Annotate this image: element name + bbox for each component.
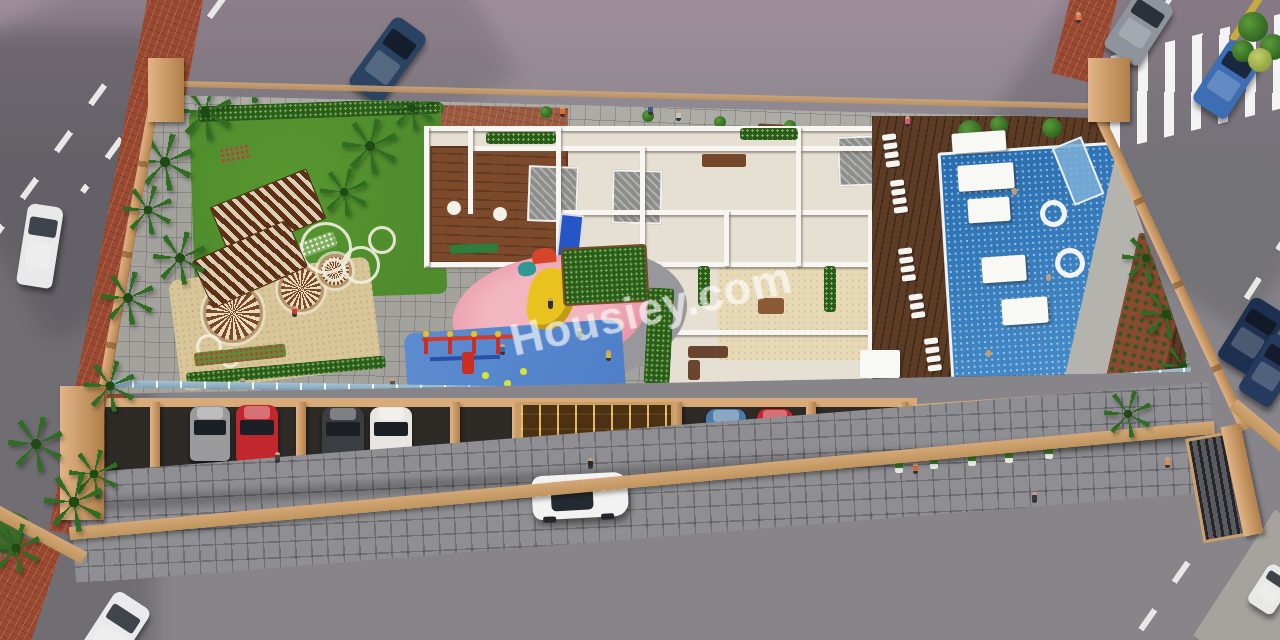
person xyxy=(606,350,611,361)
cafe-table xyxy=(444,198,464,218)
yellow-green-tree xyxy=(1248,48,1272,72)
club-wall xyxy=(470,146,874,151)
pool-lounger xyxy=(900,265,915,273)
person xyxy=(1076,12,1081,23)
person xyxy=(560,106,565,117)
person xyxy=(1165,457,1170,468)
person xyxy=(292,306,297,317)
gym-cap-yellow xyxy=(423,331,429,337)
club-planter xyxy=(740,128,798,140)
pool-cabana-wall xyxy=(951,130,1006,154)
palm-tree xyxy=(320,168,368,216)
pool-edge-shrub xyxy=(1042,118,1062,138)
pool-side-table xyxy=(860,350,900,378)
sofa xyxy=(688,360,700,380)
palm-tree xyxy=(153,231,207,285)
palm-tree xyxy=(101,271,155,325)
play-equipment-red xyxy=(462,352,474,374)
kitchen-counter xyxy=(702,154,746,167)
pool-lounger xyxy=(898,247,913,255)
spring-rider-yellow xyxy=(504,380,511,387)
club-planter xyxy=(486,132,556,144)
swimmer xyxy=(1012,188,1017,195)
club-planter xyxy=(824,266,836,312)
palm-tree xyxy=(1161,344,1205,388)
planter-pot xyxy=(1045,448,1053,459)
pool-lounger xyxy=(925,346,940,354)
pool-lounger xyxy=(908,293,923,301)
gate-pillar-top-left xyxy=(148,58,184,122)
gym-cap-yellow xyxy=(471,331,477,337)
person xyxy=(948,382,953,393)
pool-lounger xyxy=(910,302,925,310)
green-bench xyxy=(450,243,498,254)
cafe-table xyxy=(490,204,510,224)
pool-lounger xyxy=(899,256,914,264)
club-wall xyxy=(656,392,874,397)
pool-lounger xyxy=(890,179,905,187)
parked-car-gray xyxy=(190,406,230,461)
palm-tree xyxy=(1104,390,1152,438)
aerial-3d-render-scene: Housiey.com xyxy=(0,0,1280,640)
palm-tree xyxy=(44,472,104,532)
walkway-planter xyxy=(540,106,552,118)
slide-canopy-red xyxy=(531,247,556,264)
gym-cap-yellow xyxy=(495,331,501,337)
club-wall xyxy=(558,210,872,215)
sofa xyxy=(688,346,728,358)
palm-tree xyxy=(123,185,173,235)
person xyxy=(275,452,280,463)
club-wall xyxy=(656,330,874,335)
lawn-stone-circle xyxy=(368,226,396,254)
pool-lounger xyxy=(924,337,939,345)
club-wall xyxy=(796,126,801,266)
pool-float-ring xyxy=(1055,248,1085,278)
spring-rider-yellow xyxy=(520,368,527,375)
pool-cabana-wall xyxy=(1001,296,1049,325)
spring-rider-yellow xyxy=(482,372,489,379)
pool-cabana-wall xyxy=(967,197,1011,224)
planter-pot xyxy=(1005,452,1013,463)
gym-post xyxy=(448,338,452,354)
gym-cap-yellow xyxy=(447,331,453,337)
person xyxy=(905,116,910,127)
pool-cabana-wall xyxy=(957,162,1015,192)
club-wall xyxy=(468,126,473,214)
swimmer xyxy=(986,350,991,357)
parked-car-red xyxy=(236,405,278,462)
club-wall xyxy=(424,126,429,266)
person xyxy=(913,463,918,474)
person xyxy=(1032,492,1037,503)
pool-lounger xyxy=(883,142,898,150)
palm-tree xyxy=(8,416,64,472)
palm-tree xyxy=(84,360,136,412)
club-wall xyxy=(424,126,876,131)
parking-column xyxy=(150,402,160,472)
lane-dash-bottom-right xyxy=(1120,561,1191,640)
lawn-stone-circle xyxy=(322,258,346,282)
palm-tree xyxy=(342,118,398,174)
pool-lounger xyxy=(882,133,897,141)
pool-lounger xyxy=(884,151,899,159)
pool-float-ring xyxy=(1040,200,1067,227)
pool-cabana-wall xyxy=(981,254,1027,283)
swimmer xyxy=(1046,274,1051,281)
gate-pillar-top-right xyxy=(1088,58,1130,122)
pool-lounger xyxy=(926,355,941,363)
planter-pot xyxy=(895,462,903,473)
gym-post xyxy=(424,338,428,354)
person xyxy=(676,110,681,121)
person xyxy=(588,458,593,469)
pool-lounger xyxy=(892,197,907,205)
pool-lounger xyxy=(891,188,906,196)
club-wall xyxy=(724,210,729,266)
person xyxy=(500,344,505,355)
stairwell-roof xyxy=(612,170,663,225)
